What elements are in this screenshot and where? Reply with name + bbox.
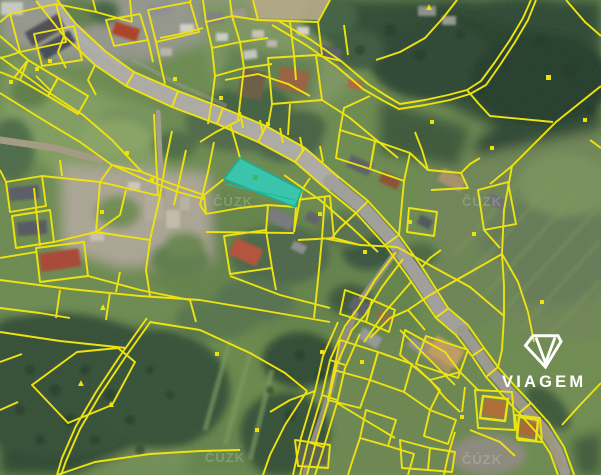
svg-text:ČÚZK: ČÚZK	[213, 194, 253, 209]
svg-text:ČÚZK: ČÚZK	[205, 450, 245, 465]
svg-text:VIAGEM: VIAGEM	[502, 373, 586, 391]
svg-text:ČÚZK: ČÚZK	[462, 194, 502, 209]
svg-text:ČÚZK: ČÚZK	[462, 452, 502, 467]
